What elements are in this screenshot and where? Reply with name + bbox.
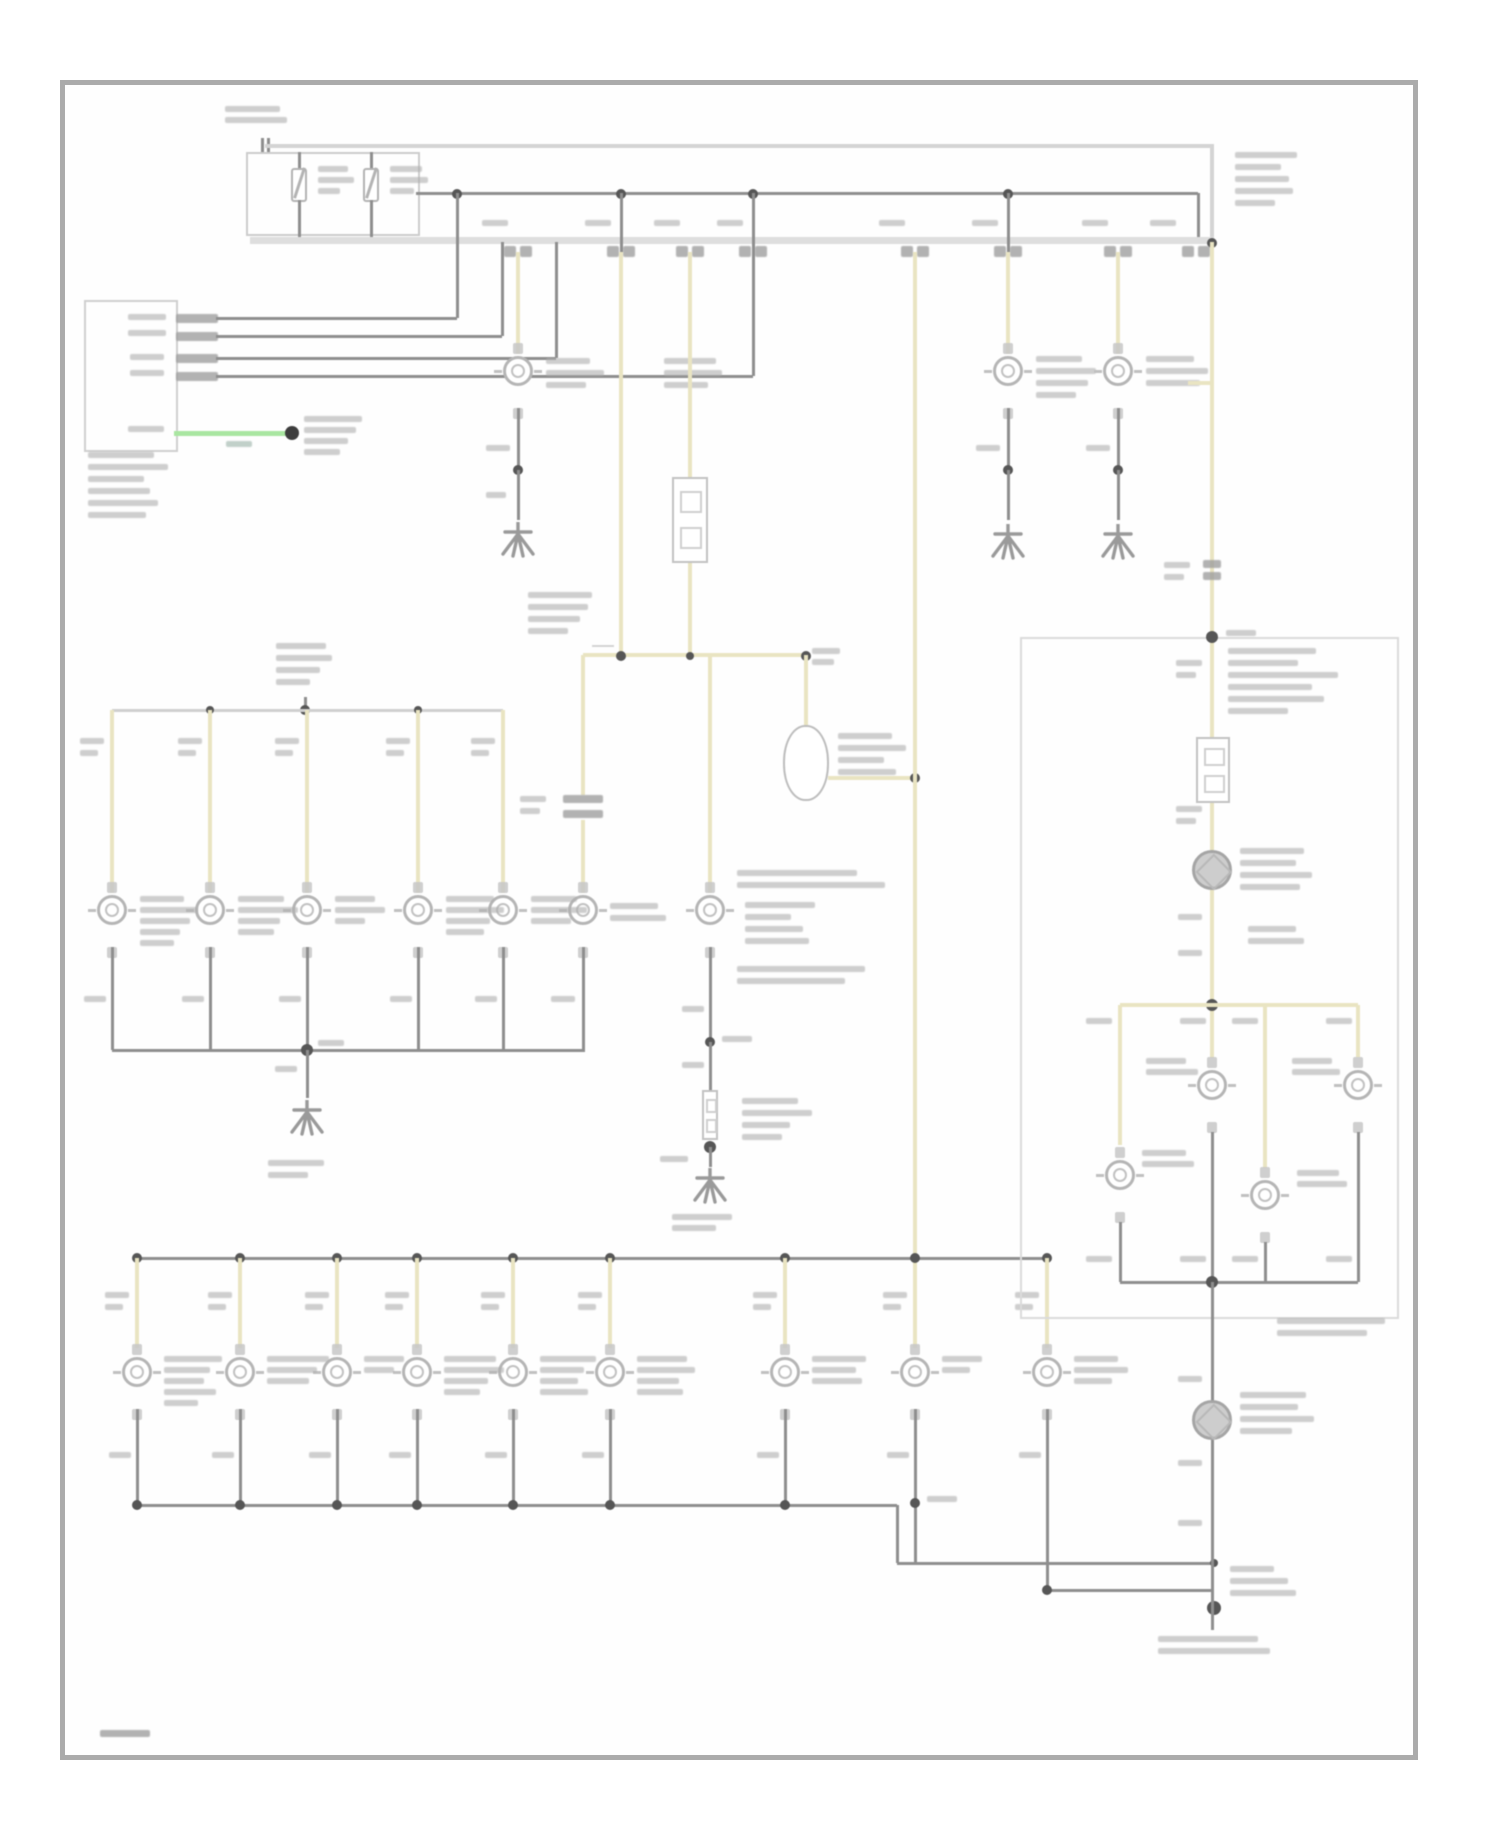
label-block (1248, 926, 1304, 950)
label-line (1178, 914, 1202, 920)
label-block (942, 1356, 982, 1378)
ground-symbol (284, 1100, 330, 1142)
label-line (225, 117, 287, 123)
label-line (664, 382, 708, 388)
gray-wire (239, 1409, 242, 1505)
lamp-terminal-top (605, 1344, 615, 1355)
lamp-tick-left (1023, 1371, 1031, 1374)
label-line (531, 907, 587, 913)
gray-wire (1117, 408, 1120, 470)
label-line (140, 896, 184, 902)
wiring-diagram-page (0, 0, 1500, 1828)
label-line (128, 426, 164, 432)
gray-wire (416, 192, 1198, 195)
tan-wire (1263, 1005, 1267, 1168)
label-line (276, 679, 310, 685)
label-line (812, 1378, 862, 1384)
label-block (1178, 914, 1202, 924)
label-block (486, 492, 506, 502)
label-line (838, 745, 906, 751)
label-block (275, 738, 299, 762)
module-oval-symbol (783, 725, 829, 801)
lamp-tick-right (519, 909, 527, 912)
label-line (540, 1378, 578, 1384)
gray-wire (1357, 1132, 1360, 1282)
label-line (745, 938, 809, 944)
label-block (682, 1006, 704, 1016)
label-block (1277, 1318, 1385, 1342)
label-block (753, 1292, 777, 1316)
connector-blob (563, 810, 603, 818)
label-block (1326, 1256, 1352, 1266)
lamp-tick-right (256, 1371, 264, 1374)
label-block (1292, 1058, 1340, 1080)
lamp-tick-left (1188, 1084, 1196, 1087)
label-line (128, 314, 166, 320)
label-line (1248, 938, 1304, 944)
label-block (531, 896, 587, 929)
label-line (446, 907, 504, 913)
label-block (279, 996, 301, 1006)
label-block (585, 220, 611, 230)
label-block (109, 1452, 131, 1462)
label-line (267, 1378, 309, 1384)
lamp-terminal-top (910, 1344, 920, 1355)
lamp-symbol (1247, 1167, 1283, 1243)
label-line (130, 354, 164, 360)
junction-dot (1042, 1585, 1052, 1595)
lamp-terminal-top (705, 882, 715, 893)
lamp-terminal-top (332, 1344, 342, 1355)
label-line (883, 1304, 901, 1310)
label-block (972, 220, 998, 230)
lamp-terminal-top (578, 882, 588, 893)
connector-blob (1203, 560, 1221, 568)
label-line (1240, 1416, 1314, 1422)
connector-component (1196, 737, 1230, 803)
tan-wire (110, 710, 114, 893)
label-line (305, 1304, 323, 1310)
tan-wire (1006, 252, 1010, 354)
label-line (276, 655, 332, 661)
lamp-symbol (1340, 1057, 1376, 1133)
gray-wire (709, 1147, 712, 1167)
label-block (717, 220, 743, 230)
connector-half-right (1010, 246, 1022, 257)
label-block (1176, 660, 1202, 684)
connector-component (702, 1090, 718, 1140)
label-line (268, 1172, 308, 1178)
label-block (664, 358, 722, 394)
label-block (1164, 562, 1190, 586)
label-line (390, 188, 414, 194)
ground-symbol (687, 1168, 733, 1210)
tan-wire (708, 655, 712, 893)
label-block (1086, 1018, 1112, 1028)
lamp-terminal-top (132, 1344, 142, 1355)
gray-wire (512, 1409, 515, 1505)
lamp-terminal-top (205, 882, 215, 893)
label-line (887, 1452, 909, 1458)
label-line (1240, 872, 1312, 878)
label-block (105, 1292, 129, 1316)
label-line (660, 1156, 688, 1162)
label-block (275, 1066, 297, 1076)
lamp-terminal-top (302, 882, 312, 893)
label-line (105, 1304, 123, 1310)
connector-half-right (623, 246, 635, 257)
gray-wire (592, 645, 614, 647)
lamp-filament (1040, 1365, 1054, 1379)
label-line (1277, 1330, 1367, 1336)
label-line (972, 220, 998, 226)
label-line (1176, 660, 1202, 666)
label-line (335, 918, 365, 924)
connector-half-left (901, 246, 913, 257)
label-line (1297, 1170, 1339, 1176)
label-block (1150, 220, 1176, 230)
label-block (389, 1452, 411, 1462)
label-block (481, 1292, 505, 1316)
lamp-tick-right (529, 1371, 537, 1374)
label-line (1240, 860, 1296, 866)
lamp-filament (410, 1365, 424, 1379)
label-line (1164, 562, 1190, 568)
label-line (1180, 1256, 1206, 1262)
label-block (1178, 1460, 1202, 1470)
junction-dot (508, 1500, 518, 1510)
label-line (88, 500, 158, 506)
label-block (128, 426, 164, 436)
label-block (838, 733, 906, 781)
label-block (540, 1356, 596, 1400)
label-line (1146, 1058, 1186, 1064)
label-block (883, 1292, 907, 1316)
gray-wire (1197, 193, 1200, 243)
connector-half-right (1198, 246, 1210, 257)
label-line (130, 370, 164, 376)
label-block (130, 370, 164, 380)
lamp-tick-left (113, 1371, 121, 1374)
label-line (275, 750, 293, 756)
label-line (812, 1356, 866, 1362)
label-block (1230, 1566, 1296, 1602)
gray-wire (784, 1409, 787, 1505)
label-line (551, 996, 575, 1002)
label-line (1297, 1181, 1347, 1187)
label-line (1086, 1018, 1112, 1024)
label-line (164, 1400, 198, 1406)
gray-wire (250, 237, 1214, 244)
green-wire (174, 431, 292, 436)
label-block (238, 896, 298, 940)
label-block (578, 1292, 602, 1316)
tan-wire (619, 252, 623, 655)
label-line (976, 445, 1000, 451)
label-line (1142, 1150, 1186, 1156)
label-line (1228, 660, 1298, 666)
label-line (485, 1452, 507, 1458)
label-block (471, 738, 495, 762)
label-line (318, 166, 348, 172)
connector-cavity-bottom (680, 527, 702, 549)
label-line (444, 1367, 504, 1373)
label-line (1158, 1648, 1270, 1654)
label-line (1292, 1058, 1332, 1064)
label-line (1292, 1069, 1340, 1075)
tan-wire (913, 252, 917, 1348)
label-block (737, 966, 865, 990)
label-line (540, 1367, 584, 1373)
label-line (88, 488, 150, 494)
tan-wire (415, 1258, 419, 1348)
gray-wire (336, 1409, 339, 1505)
label-line (753, 1292, 777, 1298)
label-block (1240, 848, 1312, 896)
label-line (1232, 1256, 1258, 1262)
label-line (528, 604, 588, 610)
connector-blob (176, 354, 218, 363)
label-line (335, 896, 375, 902)
label-block (1146, 1058, 1198, 1080)
label-line (389, 1452, 411, 1458)
label-line (812, 648, 840, 654)
label-block (182, 996, 204, 1006)
gray-wire (896, 1505, 899, 1563)
label-line (446, 929, 484, 935)
gray-wire (1007, 408, 1010, 470)
lamp-terminal-top (1207, 1057, 1217, 1068)
label-block (682, 1062, 704, 1072)
lamp-filament (203, 903, 217, 917)
lamp-terminal-top (412, 1344, 422, 1355)
connector-half-right (917, 246, 929, 257)
gray-wire (582, 947, 585, 1052)
label-line (540, 1389, 588, 1395)
label-line (226, 441, 252, 447)
connector-blob (176, 372, 218, 381)
label-line (1178, 1376, 1202, 1382)
junction-dot (910, 1498, 920, 1508)
label-line (1180, 1018, 1206, 1024)
label-line (585, 220, 611, 226)
gray-wire (914, 1409, 917, 1563)
junction-dot (910, 1253, 920, 1263)
label-block (1158, 1636, 1270, 1660)
tan-wire (238, 1258, 242, 1348)
connector-cavity-top (706, 1099, 717, 1113)
junction-dot (132, 1500, 142, 1510)
junction-dot (332, 1500, 342, 1510)
label-block (528, 592, 592, 640)
label-line (540, 1356, 596, 1362)
label-line (1142, 1161, 1194, 1167)
lamp-terminal-top (413, 882, 423, 893)
label-line (386, 750, 404, 756)
label-block (1086, 445, 1110, 455)
label-line (267, 1356, 329, 1362)
lamp-terminal-top (107, 882, 117, 893)
label-line (1036, 368, 1096, 374)
label-line (446, 918, 490, 924)
label-line (279, 996, 301, 1002)
lamp-tick-left (1096, 1174, 1104, 1177)
tan-wire (335, 1258, 339, 1348)
lamp-filament (1113, 1168, 1127, 1182)
label-line (318, 1040, 344, 1046)
label-line (838, 757, 884, 763)
gray-wire (1211, 1282, 1214, 1630)
connector-cavity-bottom (706, 1119, 717, 1133)
lamp-filament (330, 1365, 344, 1379)
label-line (654, 220, 680, 226)
label-line (88, 452, 154, 458)
lamp-tick-right (599, 909, 607, 912)
label-line (1235, 188, 1293, 194)
lamp-tick-left (1241, 1194, 1249, 1197)
label-line (1150, 220, 1176, 226)
label-line (528, 592, 592, 598)
label-line (1086, 445, 1110, 451)
lamp-tick-right (226, 909, 234, 912)
label-line (1240, 1404, 1298, 1410)
label-line (140, 907, 198, 913)
lamp-tick-right (726, 909, 734, 912)
label-line (520, 796, 546, 802)
label-line (682, 1062, 704, 1068)
label-line (578, 1292, 602, 1298)
label-block (887, 1452, 909, 1462)
gray-wire (555, 242, 558, 358)
label-line (238, 896, 284, 902)
tan-wire (501, 710, 505, 893)
label-line (390, 177, 428, 183)
label-line (1230, 1566, 1274, 1572)
gray-wire (209, 947, 212, 1050)
gray-wire (1117, 470, 1120, 520)
lamp-filament (105, 903, 119, 917)
label-line (637, 1356, 687, 1362)
label-block (1142, 1150, 1194, 1172)
tan-wire (135, 1258, 139, 1348)
label-line (444, 1389, 480, 1395)
gray-wire (1047, 1589, 1214, 1592)
label-line (1232, 1018, 1258, 1024)
label-line (268, 1160, 324, 1166)
label-line (276, 643, 326, 649)
label-line (88, 464, 168, 470)
label-line (1235, 176, 1289, 182)
label-line (481, 1292, 505, 1298)
label-line (1228, 672, 1338, 678)
label-line (528, 628, 568, 634)
label-block (318, 166, 354, 199)
label-line (879, 220, 905, 226)
label-line (1074, 1378, 1112, 1384)
gray-wire (620, 193, 623, 252)
label-line (471, 738, 495, 744)
lamp-tick-right (434, 909, 442, 912)
label-block (140, 896, 198, 951)
lamp-filament (300, 903, 314, 917)
gray-wire (1007, 193, 1010, 258)
label-line (1240, 884, 1300, 890)
lamp-filament (233, 1365, 247, 1379)
label-line (481, 1304, 499, 1310)
gray-wire (1211, 1132, 1214, 1282)
lamp-tick-right (1281, 1194, 1289, 1197)
label-block (1232, 1018, 1258, 1028)
ring-terminal (285, 426, 299, 440)
lamp-tick-left (761, 1371, 769, 1374)
fuse-element (365, 167, 378, 198)
label-block (1235, 152, 1297, 212)
label-block (305, 1292, 329, 1316)
label-block (1019, 1452, 1041, 1462)
lamp-filament (1001, 364, 1015, 378)
lamp-tick-right (931, 1371, 939, 1374)
label-line (238, 907, 298, 913)
label-line (1326, 1256, 1352, 1262)
label-line (745, 914, 791, 920)
label-line (672, 1214, 732, 1220)
label-line (742, 1122, 790, 1128)
label-block (976, 445, 1000, 455)
lamp-tick-right (128, 909, 136, 912)
label-block (385, 1292, 409, 1316)
gray-wire (306, 1050, 309, 1098)
label-block (446, 896, 504, 940)
label-line (1178, 1460, 1202, 1466)
lamp-terminal-top (498, 882, 508, 893)
label-block (610, 903, 666, 927)
lamp-filament (411, 903, 425, 917)
label-line (178, 738, 202, 744)
label-line (275, 1066, 297, 1072)
lamp-symbol (1194, 1057, 1230, 1133)
tan-wire (1118, 1005, 1122, 1145)
label-block (1180, 1256, 1206, 1266)
label-line (637, 1367, 695, 1373)
label-block (304, 416, 362, 460)
label-line (745, 926, 803, 932)
ground-symbol (985, 524, 1031, 566)
lamp-tick-right (153, 1371, 161, 1374)
connector-blob (100, 1730, 150, 1737)
label-line (305, 1292, 329, 1298)
label-line (471, 750, 489, 756)
lamp-tick-left (1094, 370, 1102, 373)
diagram-layer (0, 0, 1500, 1828)
lamp-tick-left (494, 370, 502, 373)
label-block (1297, 1170, 1347, 1192)
label-line (546, 382, 586, 388)
label-line (275, 738, 299, 744)
gray-wire (306, 947, 309, 1050)
gray-wire (416, 1409, 419, 1505)
label-block (268, 1160, 324, 1184)
label-line (927, 1496, 957, 1502)
label-line (838, 733, 892, 739)
connector-cavity-top (680, 491, 702, 513)
tan-wire (416, 710, 420, 893)
label-block (88, 452, 168, 524)
label-block (1146, 356, 1208, 392)
label-line (364, 1356, 404, 1362)
label-line (1230, 1578, 1288, 1584)
label-block (1180, 1018, 1206, 1028)
label-block (178, 738, 202, 762)
